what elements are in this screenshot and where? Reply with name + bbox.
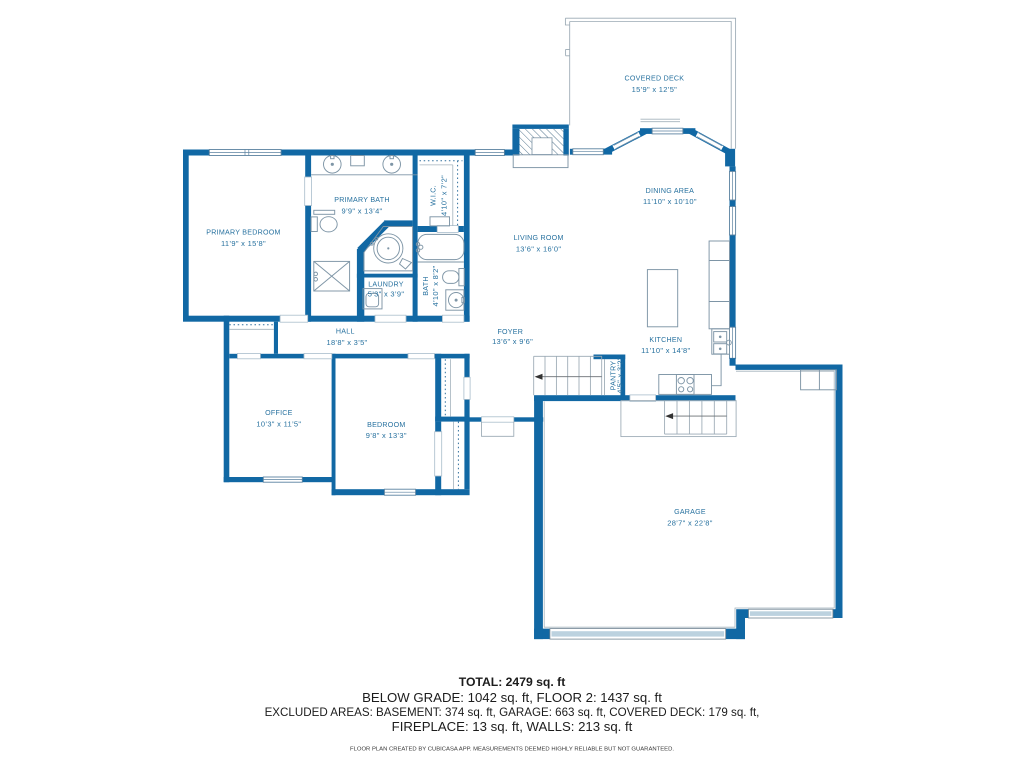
- svg-text:10’3" x 11’5": 10’3" x 11’5": [256, 420, 301, 429]
- svg-text:DINING AREA: DINING AREA: [646, 187, 694, 195]
- svg-text:PRIMARY BEDROOM: PRIMARY BEDROOM: [206, 229, 280, 237]
- svg-text:KITCHEN: KITCHEN: [649, 336, 682, 344]
- svg-text:5’3" x 3’9": 5’3" x 3’9": [368, 290, 405, 299]
- svg-text:FLOOR PLAN CREATED BY CUBICASA: FLOOR PLAN CREATED BY CUBICASA APP. MEAS…: [350, 747, 674, 753]
- svg-text:LAUNDRY: LAUNDRY: [368, 281, 404, 289]
- svg-text:18’8" x 3’5": 18’8" x 3’5": [326, 338, 367, 347]
- svg-text:11’9" x 15’8": 11’9" x 15’8": [221, 239, 266, 248]
- svg-text:BELOW GRADE: 1042 sq. ft, FLOO: BELOW GRADE: 1042 sq. ft, FLOOR 2: 1437 …: [362, 690, 662, 705]
- svg-text:OFFICE: OFFICE: [265, 409, 293, 417]
- svg-text:13’6" x 9’6": 13’6" x 9’6": [492, 337, 533, 346]
- svg-text:BEDROOM: BEDROOM: [367, 421, 405, 429]
- svg-text:4’10" x 8’2": 4’10" x 8’2": [431, 265, 440, 306]
- svg-text:15’9" x 12’5": 15’9" x 12’5": [632, 85, 678, 94]
- svg-text:4’5" x 3’2": 4’5" x 3’2": [616, 357, 625, 394]
- svg-text:TOTAL: 2479 sq. ft: TOTAL: 2479 sq. ft: [459, 675, 566, 689]
- svg-text:9’9" x 13’4": 9’9" x 13’4": [341, 207, 382, 216]
- svg-text:EXCLUDED AREAS: BASEMENT: 374: EXCLUDED AREAS: BASEMENT: 374 sq. ft, GA…: [265, 706, 760, 719]
- svg-text:FIREPLACE: 13 sq. ft, WALLS: 2: FIREPLACE: 13 sq. ft, WALLS: 213 sq. ft: [392, 719, 633, 734]
- svg-text:28’7" x 22’8": 28’7" x 22’8": [667, 519, 713, 528]
- svg-text:COVERED DECK: COVERED DECK: [625, 74, 685, 82]
- svg-text:BATH: BATH: [422, 276, 430, 295]
- svg-text:PRIMARY BATH: PRIMARY BATH: [334, 196, 389, 204]
- svg-text:FOYER: FOYER: [497, 328, 523, 336]
- svg-text:W.I.C.: W.I.C.: [430, 185, 438, 206]
- svg-text:11’10" x 14’8": 11’10" x 14’8": [641, 346, 690, 355]
- svg-text:HALL: HALL: [336, 328, 355, 336]
- svg-text:LIVING ROOM: LIVING ROOM: [514, 234, 564, 242]
- svg-text:11’10" x 10’10": 11’10" x 10’10": [643, 197, 697, 206]
- svg-text:13’6" x 16’0": 13’6" x 16’0": [516, 245, 562, 254]
- svg-text:4’10" x 7’2": 4’10" x 7’2": [440, 175, 449, 216]
- svg-text:GARAGE: GARAGE: [674, 508, 706, 516]
- svg-text:9’8" x 13’3": 9’8" x 13’3": [366, 431, 407, 440]
